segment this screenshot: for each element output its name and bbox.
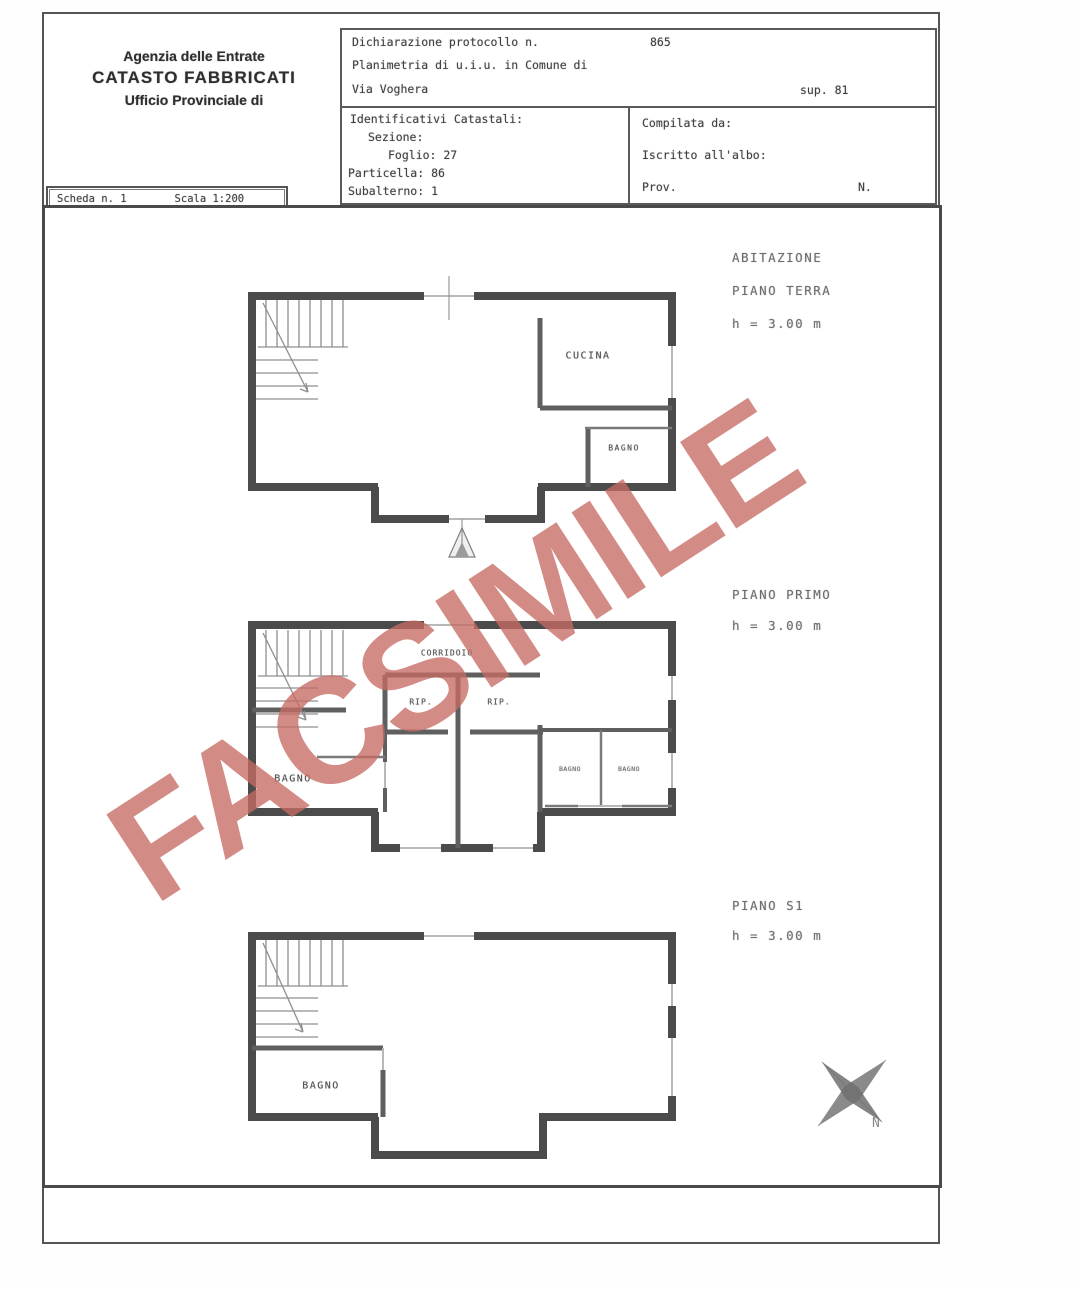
- label-piano-terra: PIANO TERRA: [732, 283, 831, 298]
- cadastral-document-page: Agenzia delle Entrate CATASTO FABBRICATI…: [0, 0, 1080, 1289]
- room-label-bagno-s1: BAGNO: [302, 1081, 340, 1092]
- label-height-terra: h = 3.00 m: [732, 316, 822, 331]
- room-label-bagno-r2: BAGNO: [618, 765, 640, 773]
- compass-north-label: N: [872, 1116, 880, 1131]
- label-height-s1: h = 3.00 m: [732, 928, 822, 943]
- label-piano-primo: PIANO PRIMO: [732, 587, 831, 602]
- room-label-cucina: CUCINA: [565, 351, 610, 362]
- label-abitazione: ABITAZIONE: [732, 250, 822, 265]
- room-label-bagno-r1: BAGNO: [559, 765, 581, 773]
- label-piano-s1: PIANO S1: [732, 898, 804, 913]
- label-height-primo: h = 3.00 m: [732, 618, 822, 633]
- piano-s1-plan: [252, 932, 672, 1159]
